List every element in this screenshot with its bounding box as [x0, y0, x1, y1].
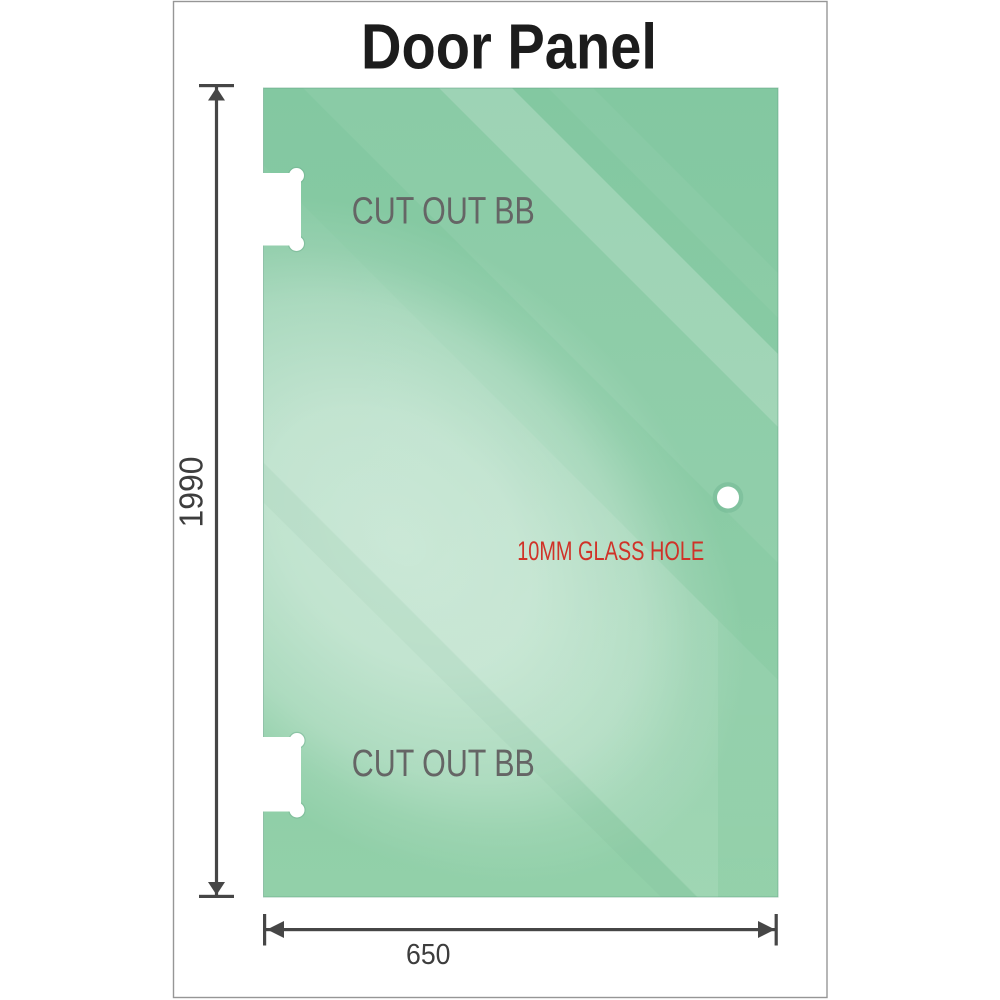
svg-text:CUT OUT BB: CUT OUT BB	[352, 190, 535, 232]
svg-text:Door Panel: Door Panel	[361, 10, 657, 82]
svg-text:650: 650	[406, 939, 451, 971]
svg-text:10MM GLASS HOLE: 10MM GLASS HOLE	[517, 536, 704, 566]
svg-text:1990: 1990	[173, 457, 210, 528]
svg-text:CUT OUT BB: CUT OUT BB	[352, 743, 535, 785]
